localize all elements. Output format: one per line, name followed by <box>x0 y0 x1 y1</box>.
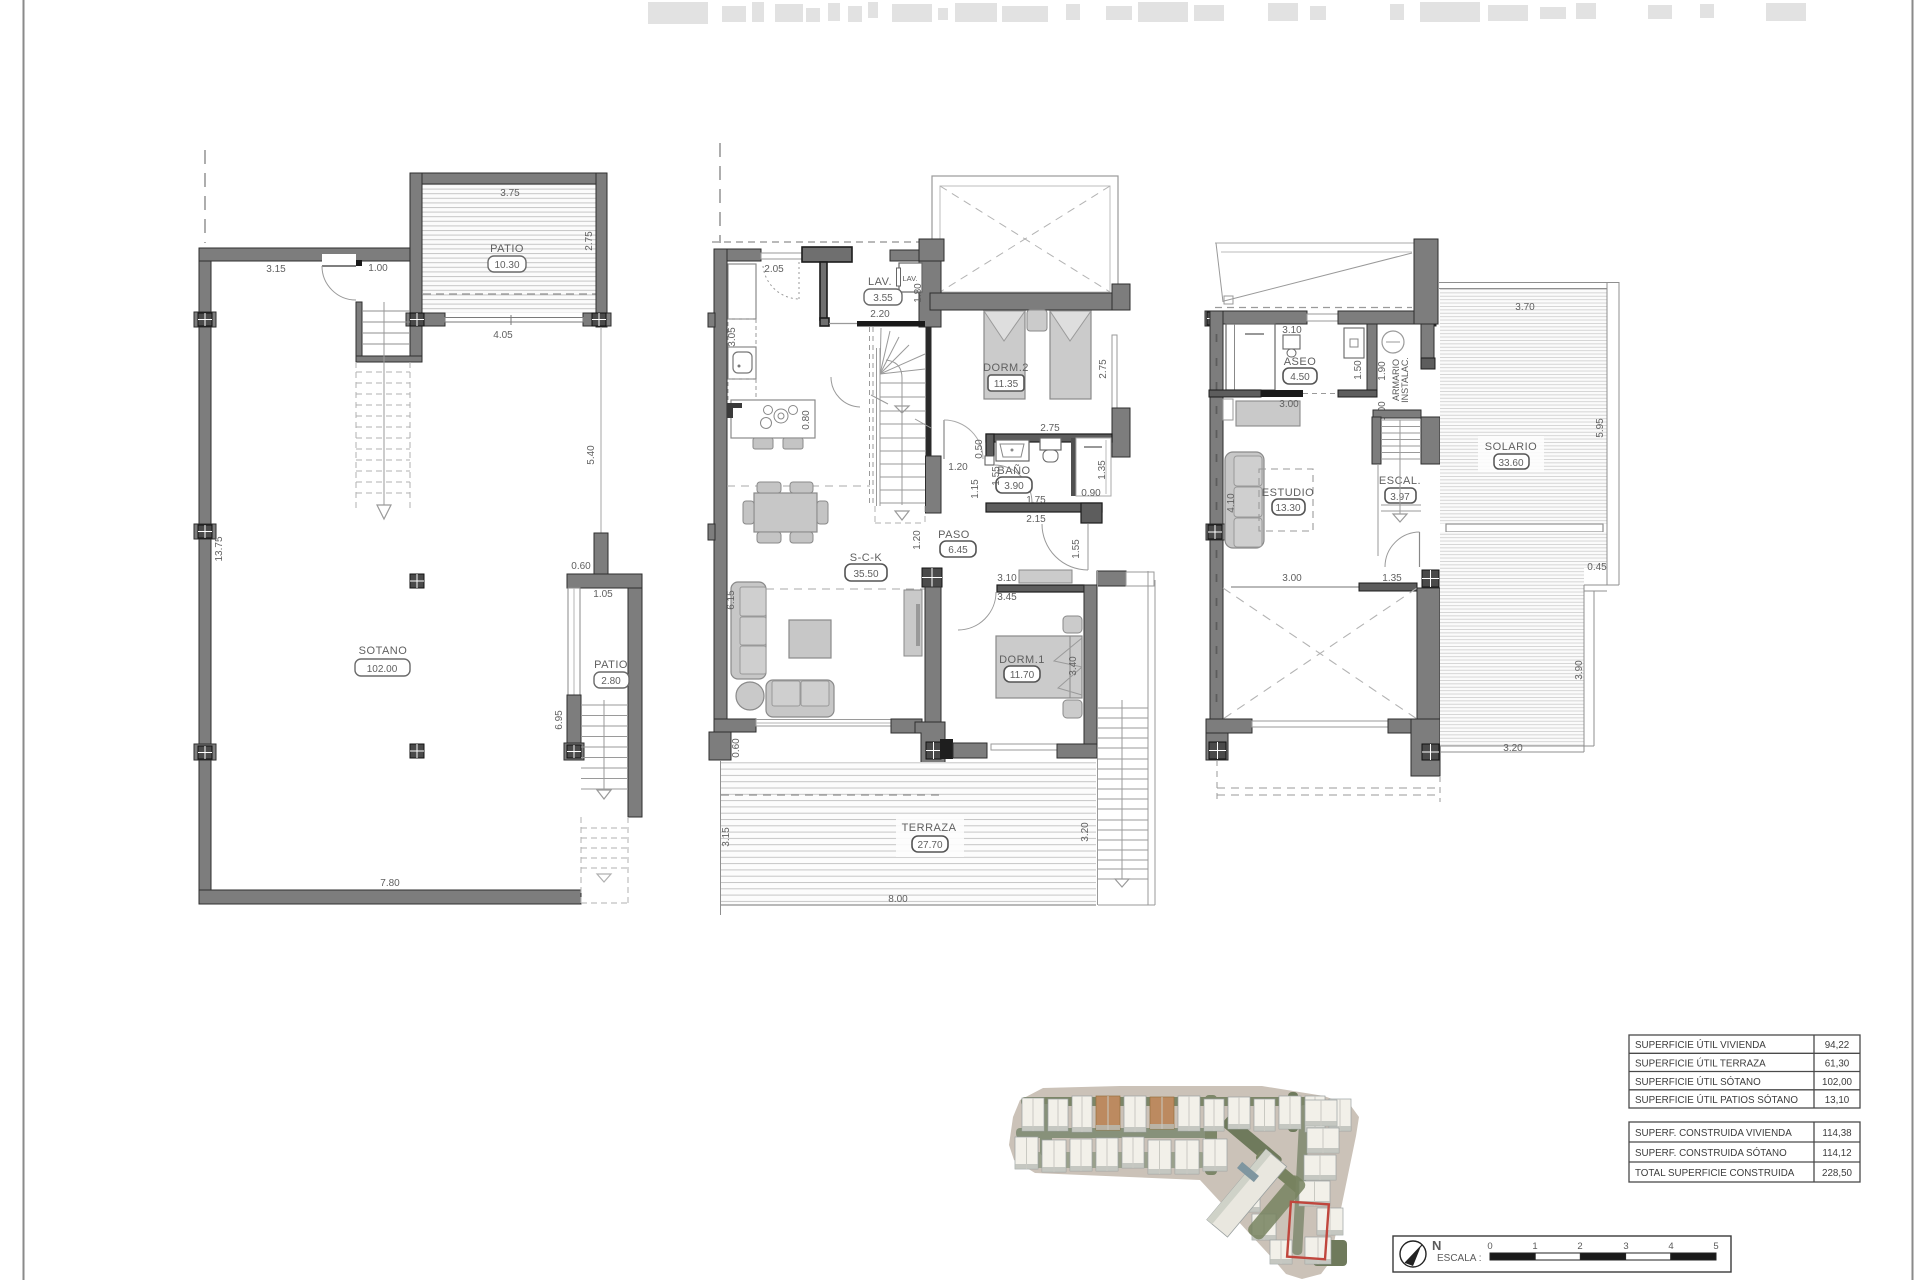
svg-text:13,10: 13,10 <box>1825 1095 1850 1106</box>
svg-text:2: 2 <box>1577 1241 1582 1252</box>
svg-text:ASEO: ASEO <box>1284 356 1317 368</box>
svg-text:4.50: 4.50 <box>1290 372 1310 383</box>
svg-text:0.90: 0.90 <box>1081 488 1101 499</box>
svg-text:SUPERFICIE ÚTIL PATIOS SÓTANO: SUPERFICIE ÚTIL PATIOS SÓTANO <box>1635 1095 1798 1106</box>
svg-text:ESTUDIO: ESTUDIO <box>1262 487 1314 499</box>
svg-text:3.20: 3.20 <box>1080 822 1091 842</box>
svg-text:3.20: 3.20 <box>1503 743 1523 754</box>
svg-text:PATIO: PATIO <box>594 659 628 671</box>
svg-text:3.10: 3.10 <box>1282 325 1302 336</box>
svg-text:1.20: 1.20 <box>948 462 968 473</box>
svg-text:13.75: 13.75 <box>214 536 225 561</box>
svg-text:3.00: 3.00 <box>1279 399 1299 410</box>
svg-text:11.70: 11.70 <box>1010 670 1035 681</box>
svg-text:TOTAL SUPERFICIE CONSTRUIDA: TOTAL SUPERFICIE CONSTRUIDA <box>1635 1168 1795 1179</box>
svg-text:0.50: 0.50 <box>974 439 985 459</box>
svg-text:0: 0 <box>1487 1241 1492 1252</box>
svg-text:114,38: 114,38 <box>1822 1128 1852 1139</box>
svg-text:SOTANO: SOTANO <box>359 645 408 657</box>
svg-text:61,30: 61,30 <box>1825 1059 1850 1070</box>
svg-text:PATIO: PATIO <box>490 243 524 255</box>
svg-text:TERRAZA: TERRAZA <box>902 822 957 834</box>
svg-text:3.00: 3.00 <box>1282 573 1302 584</box>
svg-text:1.55: 1.55 <box>991 466 1002 486</box>
svg-text:3.90: 3.90 <box>1574 660 1585 680</box>
svg-text:3.15: 3.15 <box>266 264 286 275</box>
svg-text:2.80: 2.80 <box>601 676 621 687</box>
svg-text:1.35: 1.35 <box>1097 460 1108 480</box>
svg-text:1.55: 1.55 <box>1071 539 1082 559</box>
svg-text:5.95: 5.95 <box>1595 418 1606 438</box>
svg-text:94,22: 94,22 <box>1825 1040 1850 1051</box>
svg-text:228,50: 228,50 <box>1822 1168 1853 1179</box>
svg-text:3: 3 <box>1623 1241 1628 1252</box>
svg-text:2.20: 2.20 <box>870 309 890 320</box>
svg-text:6.15: 6.15 <box>726 590 737 610</box>
svg-text:INSTALAC.: INSTALAC. <box>1400 357 1410 403</box>
svg-text:SUPERF. CONSTRUIDA SÓTANO: SUPERF. CONSTRUIDA SÓTANO <box>1635 1148 1787 1159</box>
svg-text:1.80: 1.80 <box>913 283 924 303</box>
svg-text:33.60: 33.60 <box>1498 458 1523 469</box>
svg-text:SUPERF. CONSTRUIDA VIVIENDA: SUPERF. CONSTRUIDA VIVIENDA <box>1635 1128 1792 1139</box>
svg-text:102,00: 102,00 <box>1822 1077 1853 1088</box>
svg-text:114,12: 114,12 <box>1822 1148 1851 1159</box>
svg-text:3.75: 3.75 <box>500 188 520 199</box>
svg-text:3.40: 3.40 <box>1068 656 1079 676</box>
svg-text:DORM.2: DORM.2 <box>983 362 1029 374</box>
svg-text:3.70: 3.70 <box>1515 302 1535 313</box>
svg-text:5: 5 <box>1713 1241 1718 1252</box>
svg-text:6.45: 6.45 <box>948 545 968 556</box>
svg-text:1.35: 1.35 <box>1382 573 1402 584</box>
svg-text:3.15: 3.15 <box>721 827 732 847</box>
svg-text:1.00: 1.00 <box>368 263 388 274</box>
svg-text:2.75: 2.75 <box>1040 423 1060 434</box>
svg-text:1.50: 1.50 <box>1353 360 1364 380</box>
svg-text:3.45: 3.45 <box>997 592 1017 603</box>
svg-text:0.80: 0.80 <box>801 410 812 430</box>
svg-text:8.00: 8.00 <box>888 894 908 905</box>
svg-text:1.90: 1.90 <box>1377 361 1388 381</box>
svg-text:0.60: 0.60 <box>731 738 742 758</box>
svg-text:2.75: 2.75 <box>1098 359 1109 379</box>
svg-text:1.15: 1.15 <box>970 479 981 499</box>
svg-text:4: 4 <box>1668 1241 1673 1252</box>
svg-text:SUPERFICIE ÚTIL VIVIENDA: SUPERFICIE ÚTIL VIVIENDA <box>1635 1040 1766 1051</box>
svg-text:3.55: 3.55 <box>873 293 893 304</box>
svg-text:6.95: 6.95 <box>554 710 565 730</box>
svg-text:3.10: 3.10 <box>997 573 1017 584</box>
svg-text:S-C-K: S-C-K <box>850 552 883 564</box>
svg-text:0.45: 0.45 <box>1587 562 1607 573</box>
svg-text:35.50: 35.50 <box>853 569 878 580</box>
svg-text:3.90: 3.90 <box>1004 481 1024 492</box>
svg-text:2.75: 2.75 <box>584 231 595 251</box>
svg-text:DORM.1: DORM.1 <box>999 654 1045 666</box>
svg-text:LAV.: LAV. <box>868 276 892 288</box>
svg-text:4.05: 4.05 <box>493 330 513 341</box>
svg-text:N: N <box>1432 1238 1441 1253</box>
svg-text:3.05: 3.05 <box>727 327 738 347</box>
svg-text:LAV.: LAV. <box>902 274 917 283</box>
svg-text:10.30: 10.30 <box>494 260 519 271</box>
svg-text:13.30: 13.30 <box>1275 503 1300 514</box>
svg-text:BAÑO: BAÑO <box>997 464 1030 477</box>
svg-text:SUPERFICIE ÚTIL TERRAZA: SUPERFICIE ÚTIL TERRAZA <box>1635 1059 1766 1070</box>
svg-text:1.05: 1.05 <box>593 589 613 600</box>
svg-text:4.10: 4.10 <box>1226 493 1237 513</box>
svg-text:1: 1 <box>1532 1241 1537 1252</box>
svg-text:2.15: 2.15 <box>1026 514 1046 525</box>
svg-text:1.75: 1.75 <box>1026 495 1046 506</box>
svg-text:11.35: 11.35 <box>994 379 1019 390</box>
svg-text:PASO: PASO <box>938 529 970 541</box>
svg-text:7.80: 7.80 <box>380 878 400 889</box>
svg-text:ESCALA :: ESCALA : <box>1437 1253 1481 1264</box>
svg-text:102.00: 102.00 <box>367 664 398 675</box>
svg-text:27.70: 27.70 <box>917 840 942 851</box>
svg-text:SUPERFICIE ÚTIL SÓTANO: SUPERFICIE ÚTIL SÓTANO <box>1635 1077 1761 1088</box>
svg-text:2.05: 2.05 <box>764 264 784 275</box>
svg-text:0.60: 0.60 <box>571 561 591 572</box>
svg-text:SOLARIO: SOLARIO <box>1485 441 1537 453</box>
svg-text:1.20: 1.20 <box>912 530 923 550</box>
svg-text:5.40: 5.40 <box>586 445 597 465</box>
